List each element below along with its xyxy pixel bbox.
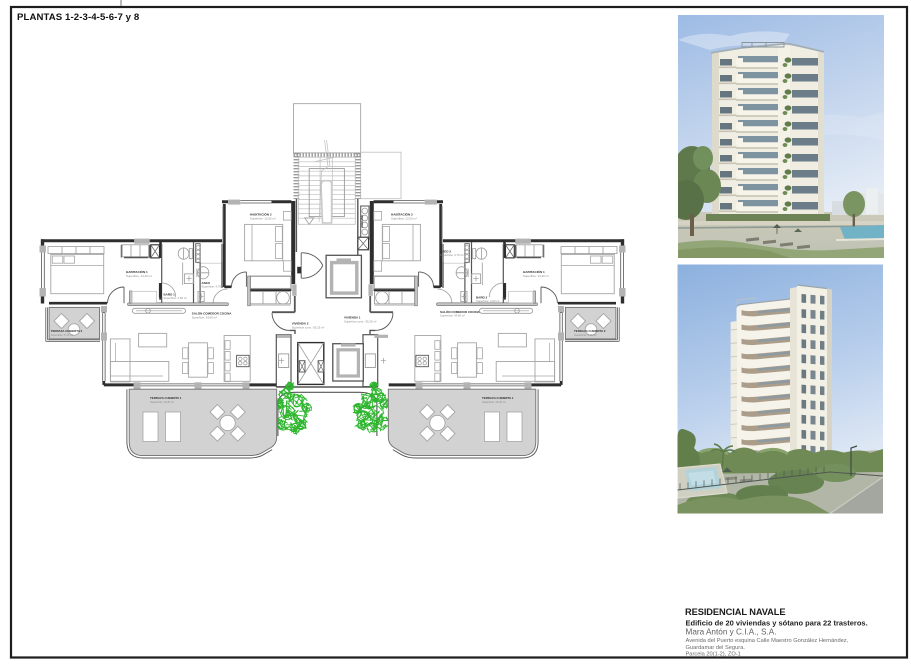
svg-text:TERRAZA CUBIERTA 1: TERRAZA CUBIERTA 1 bbox=[150, 396, 182, 400]
svg-text:TERRAZA CUBIERTA 2: TERRAZA CUBIERTA 2 bbox=[51, 329, 83, 333]
svg-text:Superficie: 34,60 m²: Superficie: 34,60 m² bbox=[440, 314, 465, 318]
svg-text:Superficie: 4,60 m²: Superficie: 4,60 m² bbox=[476, 299, 500, 303]
svg-text:Edificio de 20 viviendas y sót: Edificio de 20 viviendas y sótano para 2… bbox=[686, 619, 868, 628]
svg-text:Superficie: 12,05 m²: Superficie: 12,05 m² bbox=[250, 217, 276, 221]
svg-text:ZAGUÁN: ZAGUÁN bbox=[359, 215, 364, 228]
svg-text:Superficie: 14,40 m²: Superficie: 14,40 m² bbox=[523, 274, 549, 278]
svg-text:Superficie cons.: 95,25 m²: Superficie cons.: 95,25 m² bbox=[344, 319, 377, 323]
svg-text:Superficie: 4,70 m²: Superficie: 4,70 m² bbox=[440, 253, 464, 257]
svg-text:RESIDENCIAL NAVALE: RESIDENCIAL NAVALE bbox=[685, 607, 785, 617]
svg-text:Parcela 20(1-2), ZO-1: Parcela 20(1-2), ZO-1 bbox=[686, 652, 741, 658]
svg-text:Superficie: 4,60 m²: Superficie: 4,60 m² bbox=[164, 296, 188, 300]
svg-text:Superficie cons.: 95,25 m²: Superficie cons.: 95,25 m² bbox=[292, 325, 325, 329]
svg-text:Avenida del Puerto esquina Cal: Avenida del Puerto esquina Calle Maestro… bbox=[686, 638, 849, 644]
svg-text:TERRAZA CUBIERTA 2: TERRAZA CUBIERTA 2 bbox=[574, 329, 606, 333]
svg-text:Superficie: 14,40 m²: Superficie: 14,40 m² bbox=[126, 274, 152, 278]
svg-text:TERRAZA CUBIERTA 1: TERRAZA CUBIERTA 1 bbox=[482, 396, 514, 400]
svg-text:Guardamar del Segura.: Guardamar del Segura. bbox=[686, 645, 746, 651]
svg-text:Mara Antón y C.I.A., S.A.: Mara Antón y C.I.A., S.A. bbox=[686, 628, 777, 637]
svg-text:PLANTAS 1-2-3-4-5-6-7 y 8: PLANTAS 1-2-3-4-5-6-7 y 8 bbox=[17, 12, 140, 23]
svg-text:Superficie: 20,46 m²: Superficie: 20,46 m² bbox=[150, 400, 174, 404]
svg-text:Superficie: 12,05 m²: Superficie: 12,05 m² bbox=[391, 217, 417, 221]
svg-text:Superficie: 5,76 m²: Superficie: 5,76 m² bbox=[51, 333, 74, 337]
svg-text:Superficie: 20,46 m²: Superficie: 20,46 m² bbox=[482, 400, 506, 404]
svg-text:Superficie: 5,76 m²: Superficie: 5,76 m² bbox=[574, 333, 597, 337]
svg-text:Superficie: 34,60 m²: Superficie: 34,60 m² bbox=[192, 315, 217, 319]
